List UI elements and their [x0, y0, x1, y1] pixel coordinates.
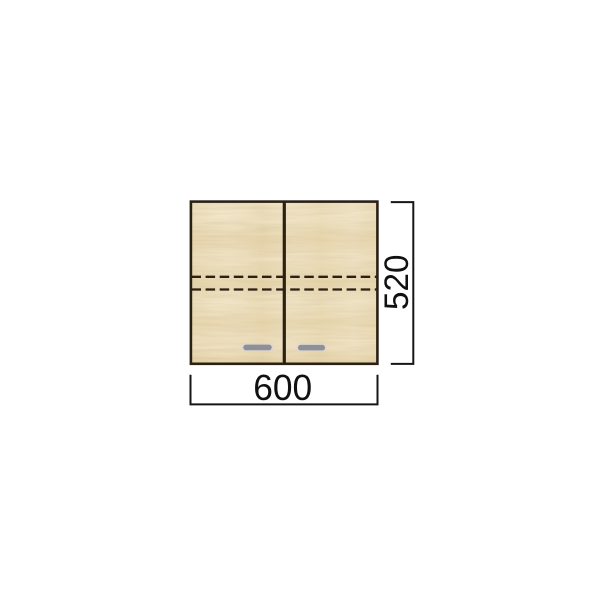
svg-text:600: 600 — [253, 367, 312, 408]
svg-text:520: 520 — [378, 255, 416, 310]
